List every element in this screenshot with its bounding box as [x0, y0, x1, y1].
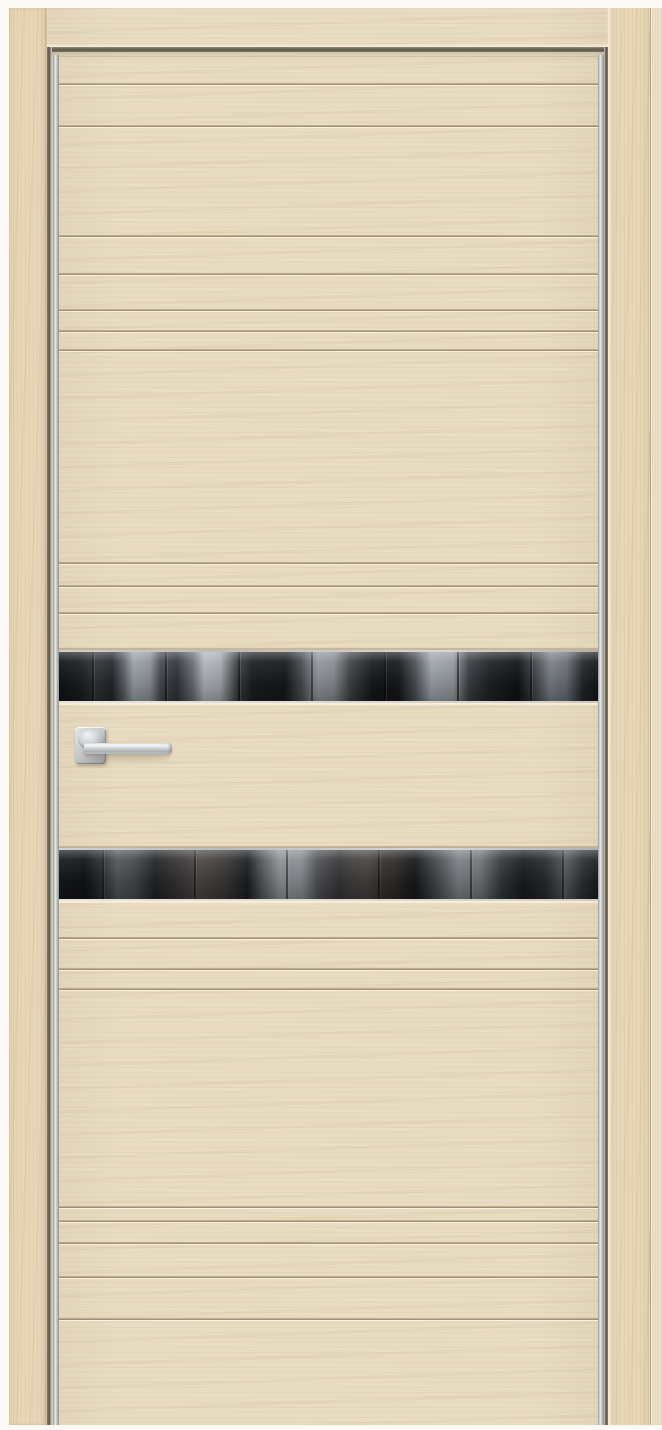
- door-groove: [59, 273, 599, 276]
- glass-bottom-edge: [58, 701, 599, 703]
- glass-reflection-surface: [58, 850, 599, 899]
- handle-hub: [79, 730, 104, 748]
- door-frame-header: [47, 8, 608, 47]
- glass-insert-upper: [58, 650, 599, 703]
- glass-bottom-edge: [58, 899, 599, 901]
- door-groove: [59, 83, 599, 86]
- door-groove: [59, 1276, 599, 1279]
- wall-architrave-right: [651, 8, 662, 1425]
- handle-rosette: [75, 727, 106, 764]
- door-groove: [59, 1206, 599, 1209]
- glass-reflection-surface: [58, 652, 599, 701]
- product-photo-interior-door: [0, 0, 662, 1430]
- chrome-edge-trim-right: [598, 55, 604, 1425]
- door-frame-casing-left: [9, 8, 47, 1425]
- door-groove: [59, 1242, 599, 1245]
- door-groove: [59, 937, 599, 940]
- door-groove: [59, 562, 599, 565]
- chrome-edge-trim-left: [53, 55, 59, 1425]
- handle-shadow: [86, 756, 170, 761]
- door-groove: [59, 1318, 599, 1321]
- door-groove: [59, 125, 599, 128]
- door-groove: [59, 612, 599, 615]
- door-groove: [59, 349, 599, 352]
- leaf-top-edge-line: [59, 56, 597, 58]
- door-groove: [59, 235, 599, 238]
- door-frame-casing-right: [608, 8, 651, 1425]
- door-groove: [59, 585, 599, 588]
- door-leaf: [52, 52, 604, 1425]
- door-groove: [59, 968, 599, 971]
- door-groove: [59, 330, 599, 333]
- glass-insert-lower: [58, 848, 599, 901]
- handle-lever: [84, 743, 172, 754]
- frame-reveal-gap-right: [604, 47, 608, 1425]
- door-groove: [59, 1220, 599, 1223]
- door-groove: [59, 988, 599, 991]
- door-groove: [59, 309, 599, 312]
